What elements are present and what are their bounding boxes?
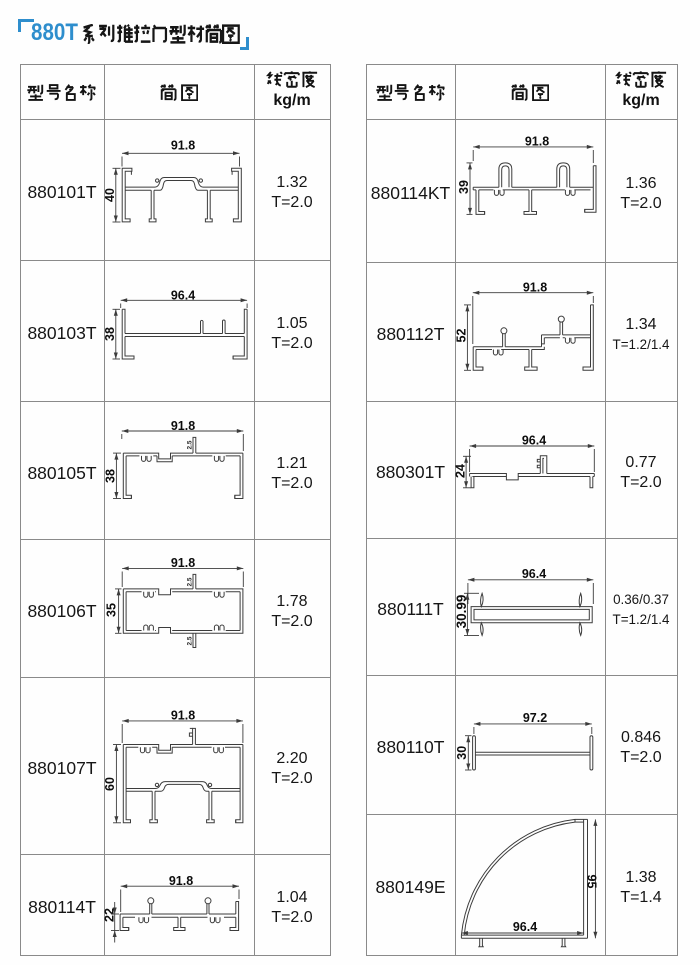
svg-text:35: 35 <box>105 603 119 617</box>
svg-text:96.4: 96.4 <box>522 433 546 447</box>
svg-text:91.8: 91.8 <box>171 556 195 570</box>
svg-text:38: 38 <box>104 469 117 483</box>
svg-text:95: 95 <box>584 875 598 889</box>
svg-text:30: 30 <box>455 746 469 760</box>
svg-text:91.8: 91.8 <box>525 134 549 148</box>
svg-text:2.5: 2.5 <box>187 636 194 645</box>
svg-text:60: 60 <box>104 777 117 791</box>
svg-text:91.8: 91.8 <box>171 708 195 722</box>
svg-text:2.5: 2.5 <box>187 577 194 586</box>
svg-text:96.4: 96.4 <box>513 920 537 934</box>
svg-text:96.4: 96.4 <box>171 288 195 302</box>
svg-text:40: 40 <box>104 188 117 202</box>
svg-text:24: 24 <box>455 464 468 478</box>
svg-text:91.8: 91.8 <box>169 874 193 888</box>
svg-text:91.8: 91.8 <box>171 139 195 153</box>
svg-text:96.4: 96.4 <box>522 567 546 581</box>
svg-text:22: 22 <box>104 908 117 922</box>
svg-text:38: 38 <box>104 327 117 341</box>
svg-text:97.2: 97.2 <box>523 711 547 725</box>
svg-text:91.8: 91.8 <box>523 281 547 295</box>
svg-text:91.8: 91.8 <box>171 419 195 433</box>
svg-text:52: 52 <box>455 329 469 343</box>
svg-text:39: 39 <box>457 180 471 194</box>
svg-text:30.99: 30.99 <box>455 595 469 629</box>
svg-text:2.5: 2.5 <box>187 440 194 449</box>
